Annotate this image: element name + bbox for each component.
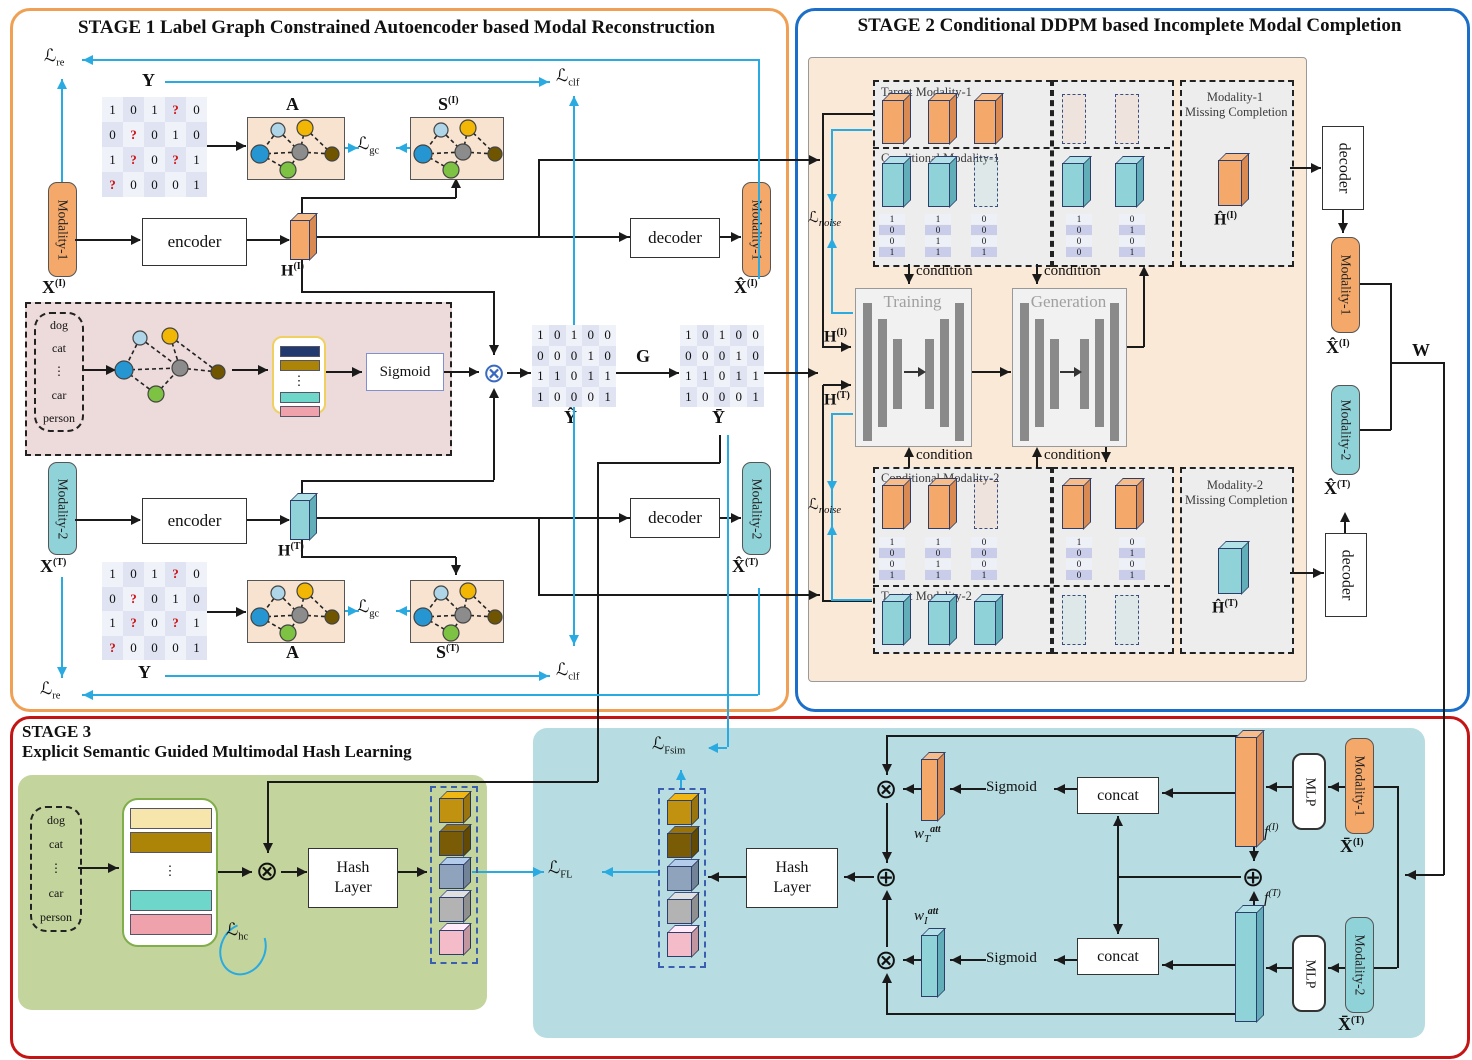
binary-code-column: 1001 bbox=[879, 537, 905, 581]
matrix-cell: ? bbox=[123, 611, 144, 636]
stage3-title-line2: Explicit Semantic Guided Multimodal Hash… bbox=[22, 742, 412, 762]
HL-cube-stack bbox=[430, 786, 478, 964]
matrix-cell: 1 bbox=[102, 562, 123, 587]
matrix-cell: 1 bbox=[599, 366, 616, 387]
arrowhead bbox=[1340, 512, 1350, 522]
arrowhead bbox=[882, 852, 892, 862]
matrix-cell: 0 bbox=[532, 346, 549, 367]
arrowhead bbox=[263, 843, 273, 853]
label-S-I: S(I) bbox=[438, 94, 459, 115]
matrix-cell: ? bbox=[102, 636, 123, 661]
matrix-cell: 0 bbox=[566, 387, 583, 408]
gold-hash-cube bbox=[439, 798, 462, 821]
arrowhead bbox=[904, 447, 914, 457]
arrowhead bbox=[352, 367, 362, 377]
yellow-graph-node bbox=[297, 583, 313, 599]
matrix-cell: 1 bbox=[102, 97, 123, 122]
condition-label-3: condition bbox=[916, 447, 973, 464]
unet-layer-bar bbox=[1050, 339, 1059, 409]
teal-feature-bar bbox=[882, 163, 902, 205]
matrix-cell: 0 bbox=[697, 346, 714, 367]
unet-layer-bar bbox=[940, 319, 949, 427]
matrix-cell: 1 bbox=[599, 387, 616, 408]
matrix-cell: 0 bbox=[102, 122, 123, 147]
darkgold-hash-cube bbox=[667, 833, 690, 856]
matrix-cell: 1 bbox=[747, 366, 764, 387]
label-Xbar-T: X̄(T) bbox=[1338, 1014, 1364, 1035]
orange-feature-bar bbox=[1062, 485, 1082, 527]
arrowhead bbox=[1113, 816, 1123, 826]
matrix-cell: 0 bbox=[566, 366, 583, 387]
loss-gc-bottom: ℒgc bbox=[357, 597, 379, 619]
yellow-graph-node bbox=[297, 120, 313, 136]
matrix-cell: 1 bbox=[747, 387, 764, 408]
matrix-cell: 1 bbox=[680, 366, 697, 387]
binary-code-column: 0101 bbox=[1119, 214, 1145, 258]
arrowhead bbox=[1311, 163, 1321, 173]
arrowhead bbox=[676, 770, 686, 780]
arrowhead bbox=[236, 141, 246, 151]
arrowhead bbox=[841, 380, 851, 390]
blue-graph-node bbox=[115, 361, 133, 379]
arrowhead bbox=[1313, 568, 1323, 578]
arrowhead bbox=[280, 235, 290, 245]
yellow-graph-node bbox=[460, 120, 476, 136]
m1-missing-label1: Modality-1 bbox=[1185, 90, 1285, 105]
gold-class-bar bbox=[280, 360, 320, 371]
modality1-output-box: Modality-1 bbox=[742, 182, 771, 277]
H-cube-stack bbox=[658, 788, 706, 968]
category-list-stage3: dogcat⋮carperson bbox=[30, 806, 82, 932]
green-graph-node bbox=[443, 625, 459, 641]
category-item: car bbox=[49, 886, 64, 901]
attention-multiply-bottom: ⊗ bbox=[873, 947, 899, 973]
arrowhead bbox=[904, 274, 914, 284]
category-item: person bbox=[43, 411, 75, 426]
m1-section-divider bbox=[873, 147, 1170, 149]
missing-feature-bar bbox=[1062, 595, 1086, 645]
connector-line bbox=[831, 599, 872, 601]
connector-line bbox=[1397, 786, 1399, 968]
stage2-decoder1-box: decoder bbox=[1322, 126, 1364, 210]
matrix-cell: ? bbox=[102, 172, 123, 197]
unet-layer-bar bbox=[1095, 319, 1104, 427]
stage2-title: STAGE 2 Conditional DDPM based Incomplet… bbox=[795, 15, 1464, 37]
arrowhead bbox=[489, 388, 499, 398]
connector-line bbox=[61, 79, 63, 182]
connector-line bbox=[82, 694, 758, 696]
connector-line bbox=[493, 390, 495, 480]
arrowhead bbox=[1329, 782, 1339, 792]
yellow-graph-node bbox=[460, 583, 476, 599]
matrix-cell: ? bbox=[165, 97, 186, 122]
yellow-graph-node bbox=[162, 328, 178, 344]
label-Hhat-T: Ĥ(T) bbox=[1212, 598, 1238, 617]
figure-root: STAGE 1 Label Graph Constrained Autoenco… bbox=[0, 0, 1472, 1060]
hash-layer-box-green: HashLayer bbox=[308, 848, 398, 908]
m2-missing-label1: Modality-2 bbox=[1185, 478, 1285, 493]
green-graph-node bbox=[280, 625, 296, 641]
matrix-cell: 0 bbox=[186, 122, 207, 147]
connector-line bbox=[1372, 967, 1397, 969]
C-matrix-box: ⋮ bbox=[272, 336, 326, 414]
matrix-cell: 1 bbox=[714, 325, 731, 346]
connector-line bbox=[822, 113, 873, 115]
teal-class-bar bbox=[280, 392, 320, 403]
connector-line bbox=[758, 59, 760, 279]
connector-line bbox=[310, 517, 630, 519]
modality2-input-box: Modality-2 bbox=[48, 462, 77, 555]
loss-Fsim: ℒFsim bbox=[652, 734, 685, 756]
loss-hc: ℒhc bbox=[226, 920, 248, 942]
attention-multiply-top: ⊗ bbox=[873, 776, 899, 802]
binary-code-column: 1011 bbox=[925, 214, 951, 258]
olive-graph-node bbox=[488, 147, 502, 161]
blue-graph-node bbox=[251, 608, 269, 626]
arrowhead bbox=[1055, 784, 1065, 794]
matrix-cell: 0 bbox=[144, 172, 165, 197]
multiply-node-stage3-green: ⊗ bbox=[254, 858, 280, 884]
Hhat-T-bar bbox=[1218, 548, 1240, 592]
H-T-bar bbox=[290, 500, 308, 538]
arrowhead bbox=[904, 784, 914, 794]
matrix-cell: ? bbox=[123, 147, 144, 172]
connector-line bbox=[267, 781, 598, 783]
loss-FL: ℒFL bbox=[548, 858, 573, 880]
label-H-T-stage2: H(T) bbox=[824, 390, 850, 409]
connector-line bbox=[538, 159, 820, 161]
arrowhead bbox=[709, 872, 719, 882]
stage2-modality1-box: Modality-1 bbox=[1331, 237, 1360, 333]
lightblue-graph-node bbox=[133, 331, 147, 345]
label-f-T: f(T) bbox=[1264, 888, 1281, 907]
label-H-I-stage2: H(I) bbox=[824, 327, 847, 346]
connector-line bbox=[727, 435, 729, 747]
label-Xhat-I: X̂(I) bbox=[734, 277, 758, 298]
unet-layer-bar bbox=[925, 339, 934, 409]
stage3-title-line1: STAGE 3 bbox=[22, 722, 91, 742]
matrix-cell: 1 bbox=[532, 387, 549, 408]
label-A-top: A bbox=[286, 94, 299, 115]
missing-feature-bar bbox=[1115, 595, 1139, 645]
label-A-bottom: A bbox=[286, 642, 299, 663]
matrix-cell: 1 bbox=[102, 611, 123, 636]
pink-hash-cube bbox=[667, 932, 690, 955]
matrix-cell: 1 bbox=[566, 325, 583, 346]
arrowhead bbox=[1249, 851, 1259, 861]
arrowhead bbox=[603, 867, 613, 877]
matrix-cell: 0 bbox=[582, 387, 599, 408]
category-item: dog bbox=[50, 318, 68, 333]
matrix-cell: 0 bbox=[144, 636, 165, 661]
missing-feature-bar bbox=[1115, 94, 1139, 144]
arrowhead bbox=[619, 513, 629, 523]
arrowhead bbox=[57, 79, 67, 89]
gray-graph-node bbox=[292, 607, 308, 623]
gray-graph-node bbox=[455, 607, 471, 623]
unet-layer-bar bbox=[1035, 319, 1044, 427]
teal-feature-bar bbox=[1062, 163, 1082, 205]
arrowhead bbox=[1163, 788, 1173, 798]
matrix-cell: 0 bbox=[549, 325, 566, 346]
matrix-cell: 0 bbox=[714, 387, 731, 408]
arrowhead bbox=[1249, 891, 1259, 901]
olive-graph-node bbox=[488, 610, 502, 624]
connector-line bbox=[165, 81, 550, 83]
arrowhead bbox=[520, 368, 530, 378]
matrix-cell: 0 bbox=[123, 97, 144, 122]
connector-line bbox=[1372, 786, 1397, 788]
label-Hhat-I: Ĥ(I) bbox=[1214, 210, 1237, 229]
matrix-cell: 1 bbox=[144, 562, 165, 587]
matrix-cell: 1 bbox=[102, 147, 123, 172]
arrowhead bbox=[1406, 870, 1416, 880]
connector-line bbox=[301, 539, 303, 557]
connector-line bbox=[597, 462, 720, 464]
arrowhead bbox=[827, 525, 837, 535]
matrix-cell: 0 bbox=[697, 325, 714, 346]
olive-graph-node bbox=[325, 610, 339, 624]
category-item: car bbox=[52, 388, 67, 403]
label-Y-top: Y bbox=[142, 70, 155, 91]
sigmoid-box: Sigmoid bbox=[366, 353, 444, 391]
matrix-cell: ? bbox=[165, 562, 186, 587]
connector-line bbox=[301, 556, 456, 558]
connector-line bbox=[831, 413, 853, 415]
gold-hash-cube bbox=[667, 800, 690, 823]
orange-feature-bar bbox=[974, 100, 994, 142]
green-graph-node bbox=[443, 162, 459, 178]
unet-layer-bar bbox=[878, 319, 887, 427]
matrix-cell: 1 bbox=[582, 346, 599, 367]
arrowhead bbox=[348, 143, 358, 153]
hash-layer-box-teal: HashLayer bbox=[746, 848, 838, 908]
lightyellow-class-bar bbox=[130, 808, 212, 829]
arrowhead bbox=[808, 368, 818, 378]
connector-line bbox=[538, 160, 540, 237]
matrix-cell: 1 bbox=[165, 587, 186, 612]
teal-feature-bar bbox=[882, 601, 902, 643]
matrix-cell: 1 bbox=[144, 97, 165, 122]
teal-feature-bar bbox=[974, 601, 994, 643]
wI-att-bar bbox=[921, 935, 936, 995]
matrix-cell: ? bbox=[123, 587, 144, 612]
label-X-T: X(T) bbox=[40, 556, 66, 577]
orange-feature-bar bbox=[928, 100, 948, 142]
matrix-cell: 0 bbox=[144, 122, 165, 147]
arrowhead bbox=[569, 635, 579, 645]
unet-layer-bar bbox=[955, 303, 964, 441]
binary-code-column: 1011 bbox=[925, 537, 951, 581]
connector-line bbox=[597, 462, 599, 782]
matrix-cell: 0 bbox=[123, 562, 144, 587]
missing-feature-bar bbox=[1062, 94, 1086, 144]
matrix-cell: 0 bbox=[730, 325, 747, 346]
matrix-cell: 1 bbox=[680, 387, 697, 408]
gray-hash-cube bbox=[439, 897, 462, 920]
matrix-cell: 0 bbox=[582, 325, 599, 346]
mlp-box-bottom: MLP bbox=[1292, 935, 1326, 1012]
arrowhead bbox=[57, 667, 67, 677]
matrix-cell: 0 bbox=[680, 346, 697, 367]
label-S-T: S(T) bbox=[436, 642, 459, 663]
unet-layer-bar bbox=[1110, 303, 1119, 441]
darkgold-hash-cube bbox=[439, 831, 462, 854]
generation-label: Generation bbox=[1012, 292, 1125, 312]
arrowhead bbox=[1329, 963, 1339, 973]
label-Ybar: Ȳ bbox=[712, 407, 725, 428]
lightblue-graph-node bbox=[271, 123, 285, 137]
stage2-modality2-box: Modality-2 bbox=[1331, 385, 1360, 475]
arrowhead bbox=[619, 232, 629, 242]
multiply-node-stage1: ⊗ bbox=[481, 360, 507, 386]
connector-line bbox=[758, 588, 760, 695]
arrowhead bbox=[280, 515, 290, 525]
graph-S-modality1 bbox=[410, 117, 504, 180]
label-Xhat-I-stage2: X̂(I) bbox=[1326, 337, 1350, 358]
arrowhead bbox=[669, 368, 679, 378]
gold-class-bar bbox=[130, 832, 212, 853]
arrowhead bbox=[297, 867, 307, 877]
connector-line bbox=[82, 59, 758, 61]
label-H-T: H(T) bbox=[278, 541, 304, 560]
matrix-cell: 1 bbox=[730, 346, 747, 367]
matrix-cell: 0 bbox=[697, 387, 714, 408]
category-item: ⋮ bbox=[50, 861, 62, 876]
blue-graph-node bbox=[414, 145, 432, 163]
connector-line bbox=[61, 577, 63, 678]
arrowhead bbox=[827, 481, 837, 491]
connector-line bbox=[1358, 283, 1391, 285]
matrix-cell: 0 bbox=[144, 147, 165, 172]
f-T-bar bbox=[1235, 912, 1255, 1020]
green-graph-node bbox=[280, 162, 296, 178]
Ybar-matrix: 10100000101101110001 bbox=[680, 325, 764, 407]
label-Yhat: Ŷ bbox=[564, 407, 577, 428]
connector-line bbox=[886, 892, 888, 947]
label-Y-bottom: Y bbox=[138, 662, 151, 683]
connector-line bbox=[301, 258, 303, 292]
arrowhead bbox=[397, 606, 407, 616]
connector-line bbox=[1143, 269, 1145, 347]
arrowhead bbox=[539, 77, 549, 87]
m2-section-divider bbox=[873, 585, 1170, 587]
decoder1-box: decoder bbox=[630, 218, 720, 258]
binary-code-column: 0101 bbox=[1119, 537, 1145, 581]
arrowhead bbox=[417, 867, 427, 877]
connector-line bbox=[1390, 362, 1444, 364]
matrix-cell: 0 bbox=[186, 587, 207, 612]
arrowhead bbox=[569, 96, 579, 106]
binary-code-column: 1000 bbox=[1066, 214, 1092, 258]
arrowhead bbox=[809, 155, 819, 165]
connector-line bbox=[822, 385, 824, 601]
arrowhead bbox=[1139, 266, 1149, 276]
graph-A-modality2 bbox=[247, 580, 345, 643]
connector-line bbox=[831, 312, 853, 314]
matrix-cell: 0 bbox=[186, 562, 207, 587]
connector-line bbox=[1117, 876, 1241, 878]
CL-matrix-box: ⋮ bbox=[122, 798, 218, 947]
label-matrix-modality2: 101?00?0101?0?1?0001 bbox=[102, 562, 207, 660]
condition-label-4: condition bbox=[1044, 447, 1101, 464]
connector-line bbox=[1117, 816, 1119, 934]
arrowhead bbox=[1267, 963, 1277, 973]
unet-layer-bar bbox=[893, 339, 902, 409]
arrowhead bbox=[108, 863, 118, 873]
fusion-add-node: ⊕ bbox=[873, 864, 899, 890]
m1-missing-label2: Missing Completion bbox=[1185, 105, 1285, 120]
bluegray-hash-cube bbox=[667, 866, 690, 889]
matrix-cell: 1 bbox=[186, 636, 207, 661]
binary-code-column: 1001 bbox=[879, 214, 905, 258]
arrowhead bbox=[83, 690, 93, 700]
category-item: cat bbox=[52, 341, 66, 356]
mlp-box-top: MLP bbox=[1292, 753, 1326, 830]
connector-line bbox=[301, 480, 494, 482]
arrowhead bbox=[1101, 452, 1111, 462]
lightblue-graph-node bbox=[434, 123, 448, 137]
teal-feature-bar bbox=[928, 163, 948, 205]
pink-class-bar bbox=[130, 914, 212, 935]
loss-clf-bottom: ℒclf bbox=[556, 660, 579, 682]
bluegray-hash-cube bbox=[439, 864, 462, 887]
arrowhead bbox=[708, 743, 718, 753]
label-f-I: f(I) bbox=[1264, 822, 1278, 841]
unet-bottleneck-arrow bbox=[1060, 371, 1074, 373]
arrowhead bbox=[348, 606, 358, 616]
matrix-cell: 0 bbox=[730, 387, 747, 408]
loss-clf-top: ℒclf bbox=[556, 66, 579, 88]
binary-code-column: 1000 bbox=[1066, 537, 1092, 581]
matrix-cell: 0 bbox=[714, 346, 731, 367]
stage3-modality2-box: Modality-2 bbox=[1345, 917, 1374, 1013]
matrix-cell: 0 bbox=[747, 325, 764, 346]
arrowhead bbox=[258, 365, 268, 375]
matrix-cell: 1 bbox=[549, 366, 566, 387]
missing-feature-bar bbox=[974, 479, 998, 529]
arrowhead bbox=[809, 590, 819, 600]
feature-add-node: ⊕ bbox=[1240, 864, 1266, 890]
arrowhead bbox=[951, 784, 961, 794]
connector-line bbox=[301, 291, 494, 293]
matrix-cell: 0 bbox=[144, 611, 165, 636]
arrowhead bbox=[1000, 367, 1010, 377]
arrowhead bbox=[827, 238, 837, 248]
connector-line bbox=[886, 735, 1241, 737]
matrix-cell: 1 bbox=[532, 325, 549, 346]
matrix-cell: 1 bbox=[532, 366, 549, 387]
arrowhead bbox=[489, 345, 499, 355]
training-label: Training bbox=[855, 292, 970, 312]
arrowhead bbox=[1113, 924, 1123, 934]
arrowhead bbox=[731, 232, 741, 242]
arrowhead bbox=[827, 194, 837, 204]
teal-feature-bar bbox=[1115, 163, 1135, 205]
arrowhead bbox=[731, 513, 741, 523]
concat-box-bottom: concat bbox=[1077, 938, 1159, 975]
arrowhead bbox=[242, 867, 252, 877]
arrowhead bbox=[83, 55, 93, 65]
matrix-cell: 0 bbox=[186, 97, 207, 122]
f-I-bar bbox=[1235, 737, 1255, 845]
encoder2-box: encoder bbox=[142, 498, 247, 544]
matrix-cell: 0 bbox=[599, 346, 616, 367]
orange-feature-bar bbox=[882, 485, 902, 527]
connector-line bbox=[538, 518, 540, 595]
connector-line bbox=[310, 236, 630, 238]
category-list-stage1: dogcat⋮carperson bbox=[34, 312, 84, 432]
